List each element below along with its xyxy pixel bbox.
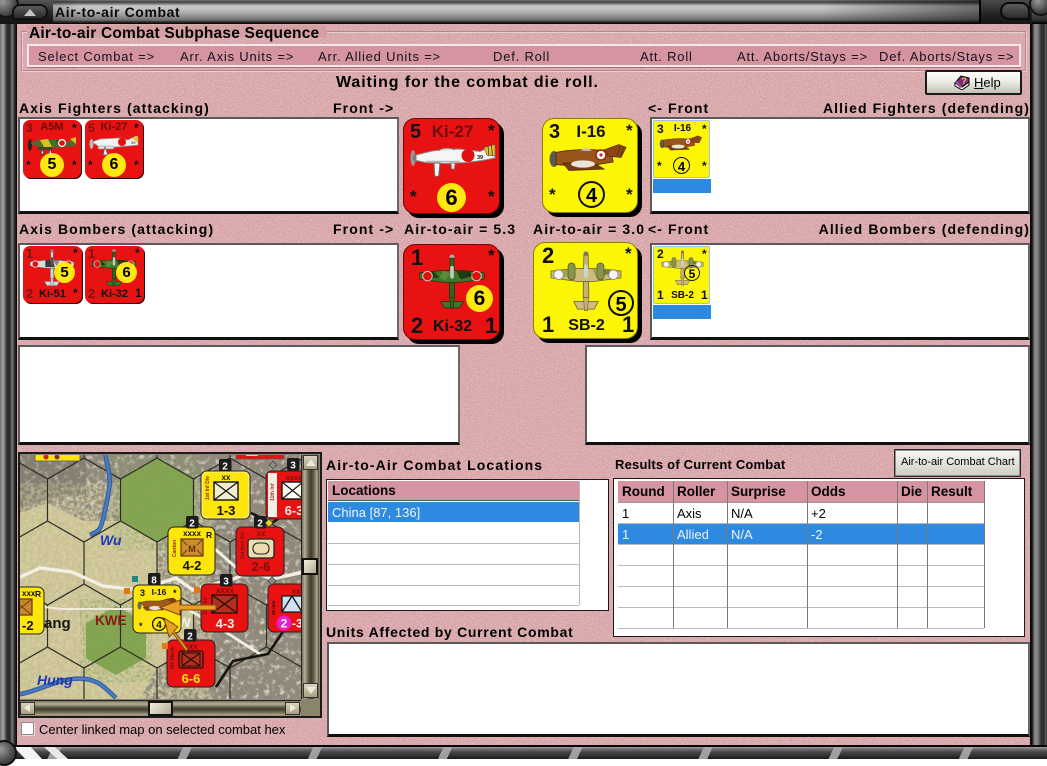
svg-text:39: 39 — [131, 140, 136, 145]
svg-text:2-6: 2-6 — [252, 559, 271, 574]
svg-text:*: * — [173, 588, 177, 598]
svg-text:6-6: 6-6 — [182, 671, 201, 686]
svg-text:xx: xx — [257, 529, 266, 538]
svg-text:2: 2 — [281, 617, 288, 631]
svg-text:5th Mech: 5th Mech — [170, 647, 176, 669]
svg-text:?: ? — [961, 76, 967, 86]
svg-text:I-16: I-16 — [152, 587, 167, 597]
svg-text:2: 2 — [187, 632, 193, 643]
svg-text:38: 38 — [603, 270, 609, 276]
svg-text:4: 4 — [156, 620, 162, 631]
svg-text:3: 3 — [290, 461, 296, 472]
svg-text:2: 2 — [257, 519, 263, 530]
svg-text:40 mm: 40 mm — [271, 601, 276, 615]
svg-text:2: 2 — [189, 519, 195, 530]
svg-text:4-2: 4-2 — [183, 558, 202, 573]
svg-text:1st Inf Div: 1st Inf Div — [205, 476, 211, 500]
svg-text:1-3: 1-3 — [217, 503, 236, 518]
svg-text:2: 2 — [222, 462, 228, 473]
svg-text:KWE: KWE — [95, 613, 127, 628]
svg-text:39: 39 — [477, 155, 483, 161]
svg-text:Canton: Canton — [172, 540, 178, 557]
svg-text:11th Inf: 11th Inf — [270, 483, 276, 501]
svg-text:*: * — [139, 621, 143, 631]
svg-text:xx: xx — [222, 473, 231, 482]
svg-text:4-3: 4-3 — [216, 616, 235, 631]
svg-text:1st Arm Div: 1st Arm Div — [240, 531, 246, 559]
svg-text:R: R — [35, 589, 41, 599]
svg-text:-3: -3 — [292, 617, 301, 631]
svg-text:3: 3 — [140, 588, 145, 598]
svg-text:38: 38 — [467, 272, 473, 278]
svg-text:8: 8 — [151, 576, 157, 587]
svg-text:xx: xx — [292, 587, 301, 596]
svg-text:-2: -2 — [22, 618, 34, 633]
svg-text:xxxx: xxxx — [183, 529, 201, 538]
svg-text:ang: ang — [44, 615, 71, 632]
svg-text:Wu: Wu — [100, 532, 122, 548]
svg-text:3: 3 — [223, 577, 229, 588]
svg-text:Hung: Hung — [37, 672, 73, 688]
svg-text:xxx: xxx — [22, 589, 36, 598]
svg-text:6-3: 6-3 — [285, 503, 301, 518]
svg-text:M: M — [188, 544, 196, 554]
svg-text:R: R — [206, 530, 212, 540]
svg-text:xxxx: xxxx — [286, 473, 301, 482]
